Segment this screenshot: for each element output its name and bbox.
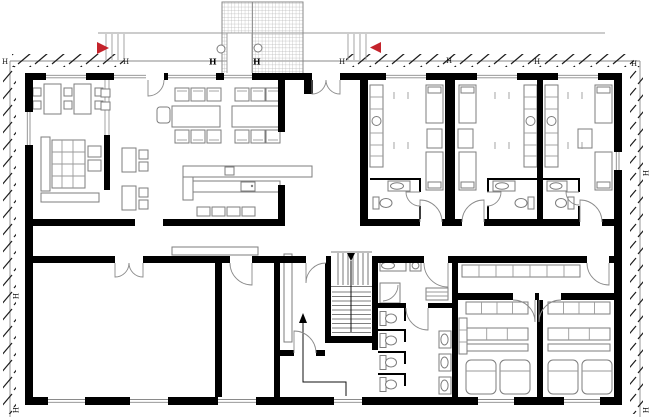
toilet bbox=[380, 199, 392, 208]
floor-plan-drawing: H H H H H H H H H H H H bbox=[0, 0, 650, 419]
boundary-marker: H bbox=[11, 407, 19, 413]
toilet bbox=[386, 380, 397, 389]
bench-row bbox=[548, 328, 610, 340]
bunk-bed bbox=[548, 360, 578, 394]
partition-post bbox=[101, 89, 110, 97]
stool bbox=[197, 207, 210, 216]
kitchen-counter bbox=[183, 166, 312, 177]
corridor-bench bbox=[172, 247, 258, 255]
table bbox=[427, 129, 442, 148]
stool bbox=[227, 207, 240, 216]
washroom bbox=[439, 331, 451, 394]
toilet-tank bbox=[373, 197, 379, 209]
boundary-marker: H bbox=[2, 58, 8, 66]
entry-arrow-east-icon bbox=[370, 42, 381, 53]
table bbox=[458, 129, 473, 148]
entrance-mat bbox=[227, 33, 252, 75]
shelf bbox=[548, 344, 610, 351]
toilet bbox=[386, 336, 397, 345]
chair bbox=[139, 200, 148, 209]
bed bbox=[459, 152, 476, 190]
chair bbox=[139, 188, 148, 197]
chair bbox=[139, 162, 148, 171]
boundary-marker: H bbox=[641, 170, 649, 176]
kitchen-counter-return bbox=[183, 177, 193, 200]
boundary-marker: H bbox=[123, 58, 129, 66]
bench bbox=[426, 288, 448, 300]
boundary-marker: H bbox=[631, 60, 637, 68]
floor-plan-canvas: H H H H H H H H H H H H bbox=[0, 0, 650, 419]
dining-table bbox=[172, 106, 220, 127]
boundary-marker: H bbox=[534, 58, 540, 66]
chair bbox=[33, 101, 41, 109]
bed bbox=[595, 85, 612, 123]
sofa bbox=[41, 137, 50, 191]
partition-post bbox=[101, 102, 110, 110]
canopy-column bbox=[217, 45, 225, 53]
boundary-marker: H bbox=[339, 58, 345, 66]
boundary-marker: H bbox=[11, 293, 19, 299]
desk bbox=[44, 84, 61, 114]
toilet-tank bbox=[568, 197, 574, 209]
tall-cabinet bbox=[284, 254, 292, 342]
end-chair bbox=[157, 107, 170, 123]
chair bbox=[139, 150, 148, 159]
boundary-marker: H bbox=[446, 57, 452, 65]
cooktop bbox=[225, 167, 234, 175]
bed bbox=[595, 152, 612, 190]
boundary-marker: H bbox=[641, 407, 649, 413]
bed bbox=[459, 85, 476, 123]
bed bbox=[426, 152, 443, 190]
desk bbox=[74, 84, 91, 114]
canopy-column-marker: H bbox=[253, 57, 261, 67]
shower bbox=[380, 283, 400, 303]
corridor-wardrobe-row bbox=[462, 265, 580, 277]
chair bbox=[64, 88, 72, 96]
toilet bbox=[386, 358, 397, 367]
table bbox=[578, 129, 592, 148]
toilet-tank bbox=[528, 197, 534, 209]
chair bbox=[33, 88, 41, 96]
chair bbox=[64, 101, 72, 109]
cabinet bbox=[459, 318, 467, 354]
stool bbox=[212, 207, 225, 216]
dining-table bbox=[232, 106, 280, 127]
bunk-bed bbox=[582, 360, 612, 394]
side-table bbox=[122, 148, 136, 172]
canopy-column bbox=[254, 44, 262, 52]
kitchen-island bbox=[193, 181, 280, 192]
side-table bbox=[122, 186, 136, 210]
bunk-bed bbox=[466, 360, 496, 394]
armchair bbox=[88, 146, 101, 157]
dining-area bbox=[157, 88, 280, 143]
armchair bbox=[88, 160, 101, 171]
entry-arrow-west-icon bbox=[97, 42, 109, 54]
toilet bbox=[386, 314, 397, 323]
toilet bbox=[515, 199, 527, 208]
stool bbox=[242, 207, 255, 216]
canopy-column-marker: H bbox=[209, 57, 217, 67]
bed bbox=[426, 85, 443, 123]
bench-row bbox=[466, 328, 528, 340]
bunk-bed bbox=[500, 360, 530, 394]
sofa bbox=[41, 193, 99, 202]
shelf bbox=[466, 344, 528, 351]
toilet bbox=[556, 199, 567, 208]
